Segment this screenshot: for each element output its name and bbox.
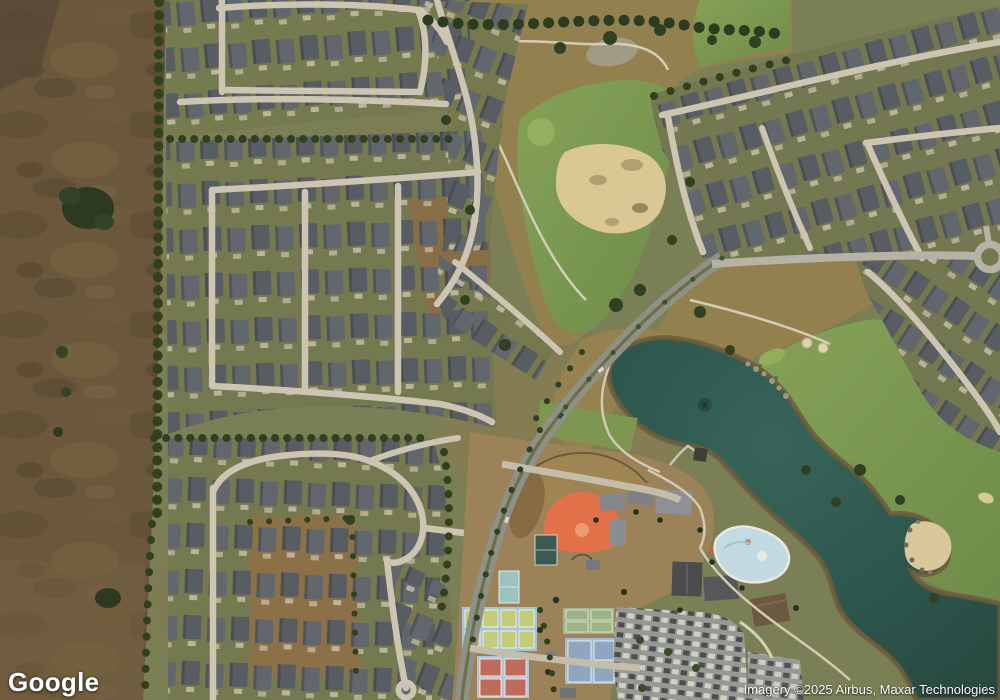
satellite-map[interactable] — [0, 0, 1000, 700]
roundabout — [978, 245, 1000, 270]
courts-red-center — [477, 656, 529, 698]
putting-green — [526, 117, 556, 147]
attribution: Imagery ©2025 Airbus, Maxar Technologies — [744, 682, 995, 697]
map-viewport[interactable]: Google Imagery ©2025 Airbus, Maxar Techn… — [0, 0, 1000, 700]
farmland — [0, 0, 166, 700]
google-logo[interactable]: Google — [8, 667, 99, 698]
courts-green — [563, 608, 614, 634]
